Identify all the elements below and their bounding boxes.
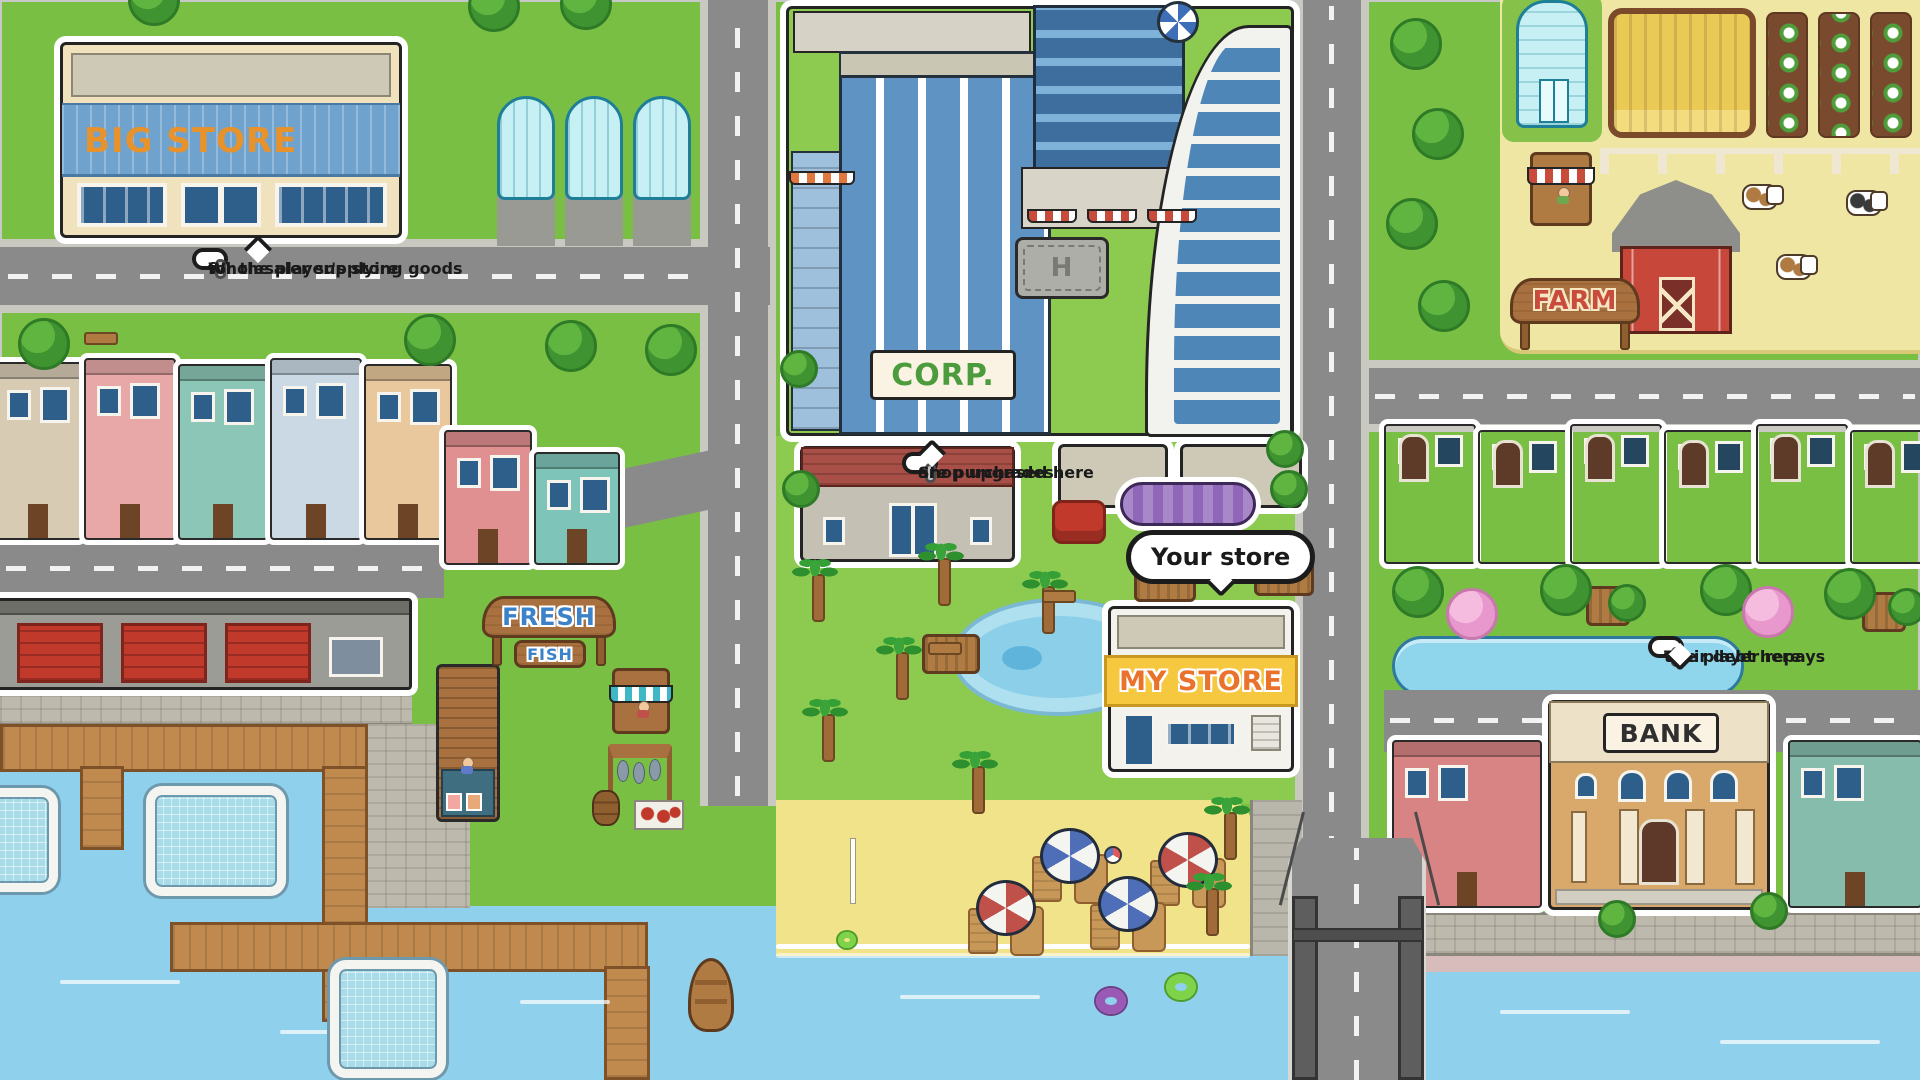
sidewalk [0,305,770,313]
farm-sign[interactable]: FARM [1510,278,1640,324]
swim-ring-purple [1096,988,1126,1014]
corp-compound[interactable]: CORP. H [786,6,1294,436]
townhouse-two-story [1384,424,1476,564]
beach-water [772,952,1292,1080]
bridge-tower-left [1292,896,1318,1080]
bridge-tower-right [1398,896,1424,1080]
bank-sign: BANK [1603,713,1719,753]
palm-tree [914,540,968,604]
townhouse [534,452,620,565]
tree [128,0,180,26]
corp-sign-text: CORP. [891,358,995,393]
tree [1412,108,1464,160]
townhouse [444,430,532,565]
road-dashes [1375,394,1915,399]
cow [1846,190,1888,216]
townhouse [84,358,176,540]
cow [1776,254,1818,280]
farm-sign-text: FARM [1533,286,1618,316]
wave [1500,1010,1630,1014]
swim-ring-green [1166,974,1196,1000]
volleyball-net [850,838,856,904]
sidewalk [1369,360,1920,368]
townhouse-two-story [1664,430,1754,564]
tree [468,0,520,32]
road-dashes [1329,6,1334,856]
palm-tree [872,634,926,698]
fresh-sign-text: FRESH [502,603,596,631]
beach-umbrella [1088,876,1164,948]
tooltip-bank-debt: The player repays their debt here [1648,636,1684,658]
shore-foam2 [776,953,1250,958]
corp-sign: CORP. [870,350,1016,400]
palm-tree [1200,794,1254,858]
tree [1540,564,1592,616]
farm-fence [1600,148,1920,174]
fish-pen [146,786,286,896]
palm-tree [948,748,1002,812]
fish-pen [0,788,58,892]
tree [1266,430,1304,468]
beach-umbrella [966,880,1042,952]
purple-canopy [1120,482,1256,526]
bench [928,642,962,655]
warehouse-apron [565,196,623,246]
swim-ring-small [838,932,856,948]
cow [1742,184,1784,210]
tree [18,318,70,370]
barrel [592,790,620,826]
tree [1598,900,1636,938]
fish-stall [436,664,500,822]
storage-greenhouse [497,96,555,200]
townhouse-two-story [1850,430,1920,564]
sidewalk [700,0,708,806]
road-dashes [735,6,740,796]
helipad-building: H [1015,237,1109,299]
road-dashes [6,566,426,571]
promenade-paving [1374,912,1920,956]
blossom-tree [1446,588,1498,640]
harbor-wall [0,690,412,726]
bench [84,332,118,345]
fresh-fish-sign[interactable]: FRESH [482,596,616,638]
stand-person [637,701,649,717]
farmer-person [1557,187,1569,203]
tree [782,470,820,508]
big-store-roof-band [71,53,391,97]
blossom-tree [1742,586,1794,638]
sidewalk [768,0,776,806]
tree [1888,588,1920,626]
townhouse-two-story [1756,424,1848,564]
storage-greenhouse [633,96,691,200]
tree [1386,198,1438,250]
tree [545,320,597,372]
farm-stand [1530,152,1592,226]
townhouse [178,364,268,540]
tree [1824,568,1876,620]
red-cart [1052,500,1106,544]
bench [1042,590,1076,603]
tooltip-upgrades: Shop upgrades are purchased here [902,452,938,474]
big-store-window [275,183,387,227]
beach-ball [1104,846,1122,864]
wave [1720,1040,1880,1044]
your-store-label: Your store [1126,530,1315,584]
awning-stand [612,668,670,734]
farm-greenhouse [1516,0,1588,128]
palm-tree [1182,870,1236,934]
big-store-facade: BIG STORE [62,103,400,177]
bridge-dashes [1354,848,1359,1080]
your-store-text: Your store [1151,543,1290,571]
big-store-building[interactable]: BIG STORE [60,42,402,238]
storage-greenhouse [565,96,623,200]
game-city-map: BIG STORE Wholesaler supplying goods for… [0,0,1920,1080]
wave [520,1000,610,1004]
townhouse [0,362,82,540]
pier-stub [80,766,124,850]
tooltip-upgrades-line2: are purchased here [918,463,1094,484]
fish-stall-counter [441,769,495,817]
townhouse-two-story [1478,430,1568,564]
pier-stub-south [604,966,650,1080]
wave [60,980,180,984]
big-store-window [77,183,167,227]
my-store-building[interactable]: MY STORE [1108,606,1294,772]
tree [1392,566,1444,618]
tree [404,314,456,366]
townhouse [364,364,452,540]
sign-post [492,634,502,666]
warehouse-apron [633,196,691,246]
helipad-letter: H [1051,253,1074,283]
big-store-entrance [181,183,261,227]
quay-edge [1374,956,1920,972]
fish-sign-text: FISH [527,645,573,664]
tree [780,350,818,388]
tree [1270,470,1308,508]
tree [1750,892,1788,930]
tree [645,324,697,376]
corp-annex [793,11,1031,53]
crop-bed [1766,12,1808,138]
wheat-field [1608,8,1756,138]
tree [1418,280,1470,332]
tooltip-wholesaler-line2: for the player's store [208,259,398,280]
pier-main [0,724,368,772]
teal-house [1788,740,1920,908]
tree [560,0,612,30]
tooltip-wholesaler: Wholesaler supplying goods for the playe… [192,248,228,270]
bridge-crossbeam [1292,928,1424,942]
big-store-sign: BIG STORE [84,121,297,161]
palm-tree [798,696,852,760]
bank-sign-text: BANK [1620,719,1703,748]
sign-post [596,634,606,666]
palm-tree [788,556,842,620]
my-store-sign: MY STORE [1119,666,1283,697]
townhouse-two-story [1570,424,1662,564]
townhouse [270,358,362,540]
fish-sign-board: FISH [514,640,586,668]
tree [1608,584,1646,622]
bank-building[interactable]: BANK [1548,700,1770,910]
crop-bed [1870,12,1912,138]
sidewalk [1361,0,1369,912]
lobster-crate [634,800,684,830]
harbor-garage [0,598,412,690]
river-water [1424,972,1920,1080]
wave [900,995,1040,999]
crop-bed [1818,12,1860,138]
warehouse-apron [497,196,555,246]
tower-pinwheel-logo [1157,1,1199,43]
fish-pen [330,960,446,1078]
vendor-person [461,757,473,773]
tree [1390,18,1442,70]
